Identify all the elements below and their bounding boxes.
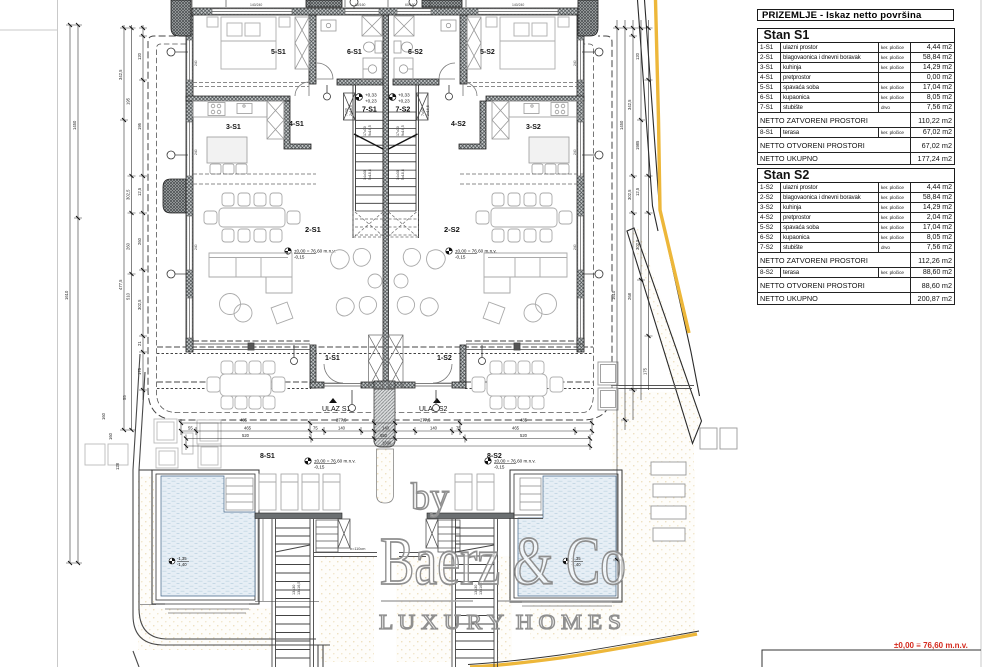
svg-text:510: 510 [126, 292, 131, 300]
svg-text:140: 140 [382, 426, 390, 431]
svg-text:260: 260 [126, 242, 131, 250]
svg-text:+0,33: +0,33 [398, 93, 410, 98]
svg-text:13x16,5: 13x16,5 [297, 581, 301, 595]
svg-text:2x16,5: 2x16,5 [349, 105, 353, 116]
svg-text:1690: 1690 [382, 441, 392, 446]
svg-text:60/160: 60/160 [355, 3, 365, 7]
svg-text:13x30: 13x30 [292, 585, 296, 595]
svg-text:485: 485 [520, 418, 528, 423]
svg-text:7x30: 7x30 [345, 108, 349, 116]
svg-text:75: 75 [313, 426, 318, 431]
svg-text:277,5: 277,5 [420, 418, 431, 423]
svg-text:240: 240 [573, 244, 577, 250]
svg-text:342,5: 342,5 [118, 69, 123, 80]
svg-text:-0,15: -0,15 [455, 255, 466, 260]
svg-text:1450: 1450 [72, 120, 77, 130]
svg-text:5x18,8: 5x18,8 [401, 169, 405, 180]
svg-text:240: 240 [573, 149, 577, 155]
svg-text:485: 485 [240, 418, 248, 423]
svg-text:+0,23: +0,23 [398, 99, 410, 104]
svg-text:1-S2: 1-S2 [437, 355, 452, 362]
svg-text:268: 268 [627, 292, 632, 300]
svg-text:7-S2: 7-S2 [396, 107, 411, 114]
svg-text:17x30: 17x30 [396, 126, 400, 136]
svg-text:+0,33: +0,33 [365, 93, 377, 98]
svg-text:7-S1: 7-S1 [362, 107, 377, 114]
svg-text:520: 520 [242, 433, 250, 438]
svg-text:14x30: 14x30 [396, 170, 400, 180]
svg-text:1450: 1450 [619, 120, 624, 130]
svg-text:6-S2: 6-S2 [408, 49, 423, 56]
svg-text:±0,00 = 76,60 m.n.v.: ±0,00 = 76,60 m.n.v. [294, 249, 336, 254]
svg-text:342,5: 342,5 [627, 99, 632, 110]
svg-text:160: 160 [108, 432, 113, 440]
svg-text:8-S1: 8-S1 [260, 453, 275, 460]
svg-text:240: 240 [194, 149, 198, 155]
svg-text:195: 195 [137, 122, 142, 130]
svg-text:302,5: 302,5 [137, 299, 142, 310]
svg-text:4-S1: 4-S1 [289, 121, 304, 128]
svg-text:21: 21 [137, 341, 142, 346]
svg-text:b=110cm: b=110cm [350, 547, 365, 551]
svg-text:5-S2: 5-S2 [480, 49, 495, 56]
svg-text:465: 465 [512, 426, 520, 431]
svg-text:120: 120 [137, 52, 142, 60]
svg-text:Baerz & Co: Baerz & Co [380, 523, 626, 599]
svg-text:12,5: 12,5 [635, 187, 640, 196]
svg-text:140: 140 [430, 426, 438, 431]
svg-text:3-S2: 3-S2 [526, 124, 541, 131]
svg-text:75: 75 [456, 426, 461, 431]
svg-text:302,5: 302,5 [635, 239, 640, 250]
svg-text:302,5: 302,5 [126, 189, 131, 200]
svg-text:L U X U R Y H O M E S: L U X U R Y H O M E S [379, 610, 621, 634]
svg-text:-1,35: -1,35 [177, 556, 187, 561]
svg-text:-0,15: -0,15 [294, 255, 305, 260]
svg-text:7x30: 7x30 [421, 108, 425, 116]
svg-text:9x16,5: 9x16,5 [368, 125, 372, 136]
svg-text:520: 520 [520, 433, 528, 438]
svg-text:175: 175 [643, 367, 648, 375]
svg-text:±0,00 ≡ 76,60 m.n.v.: ±0,00 ≡ 76,60 m.n.v. [894, 641, 968, 650]
svg-text:260: 260 [137, 237, 142, 245]
svg-text:240: 240 [573, 60, 577, 66]
svg-text:2-S1: 2-S1 [305, 225, 321, 234]
svg-text:1-S1: 1-S1 [325, 355, 340, 362]
svg-text:1610: 1610 [64, 290, 69, 300]
svg-text:55: 55 [122, 395, 127, 400]
svg-text:2x16,5: 2x16,5 [426, 105, 430, 116]
svg-text:195: 195 [126, 97, 131, 105]
svg-text:5x18,8: 5x18,8 [368, 169, 372, 180]
svg-text:128: 128 [115, 462, 120, 470]
svg-text:60/160: 60/160 [405, 3, 415, 7]
svg-text:3-S1: 3-S1 [226, 124, 241, 131]
svg-text:9x16,5: 9x16,5 [401, 125, 405, 136]
svg-text:120: 120 [635, 52, 640, 60]
svg-text:650: 650 [380, 433, 388, 438]
svg-text:277,5: 277,5 [336, 418, 347, 423]
svg-text:12,5: 12,5 [137, 187, 142, 196]
svg-text:55: 55 [188, 426, 193, 431]
svg-text:140/240: 140/240 [250, 3, 262, 7]
svg-text:-0,15: -0,15 [494, 465, 505, 470]
svg-text:2-S2: 2-S2 [444, 225, 460, 234]
svg-text:17x30: 17x30 [363, 126, 367, 136]
svg-text:302,5: 302,5 [627, 189, 632, 200]
svg-text:140/240: 140/240 [512, 3, 524, 7]
svg-text:1610: 1610 [611, 290, 616, 300]
svg-text:5-S1: 5-S1 [271, 49, 286, 56]
svg-text:160: 160 [101, 412, 106, 420]
svg-text:140: 140 [338, 426, 346, 431]
svg-text:+0,23: +0,23 [365, 99, 377, 104]
svg-text:-0,15: -0,15 [314, 465, 325, 470]
svg-text:by: by [411, 476, 449, 518]
svg-text:±0,00 = 76,60 m.n.v.: ±0,00 = 76,60 m.n.v. [314, 459, 356, 464]
svg-text:477,5: 477,5 [118, 279, 123, 290]
svg-text:14x30: 14x30 [363, 170, 367, 180]
svg-text:4-S2: 4-S2 [451, 121, 466, 128]
svg-text:±0,00 = 76,60 m.n.v.: ±0,00 = 76,60 m.n.v. [494, 459, 536, 464]
svg-text:ULAZ S1: ULAZ S1 [322, 406, 351, 413]
svg-text:175: 175 [137, 367, 142, 375]
svg-text:1985: 1985 [635, 140, 640, 150]
svg-text:240: 240 [194, 244, 198, 250]
svg-text:465: 465 [244, 426, 252, 431]
svg-text:240: 240 [194, 60, 198, 66]
svg-text:6-S1: 6-S1 [347, 49, 362, 56]
svg-text:-1,40: -1,40 [177, 562, 187, 567]
